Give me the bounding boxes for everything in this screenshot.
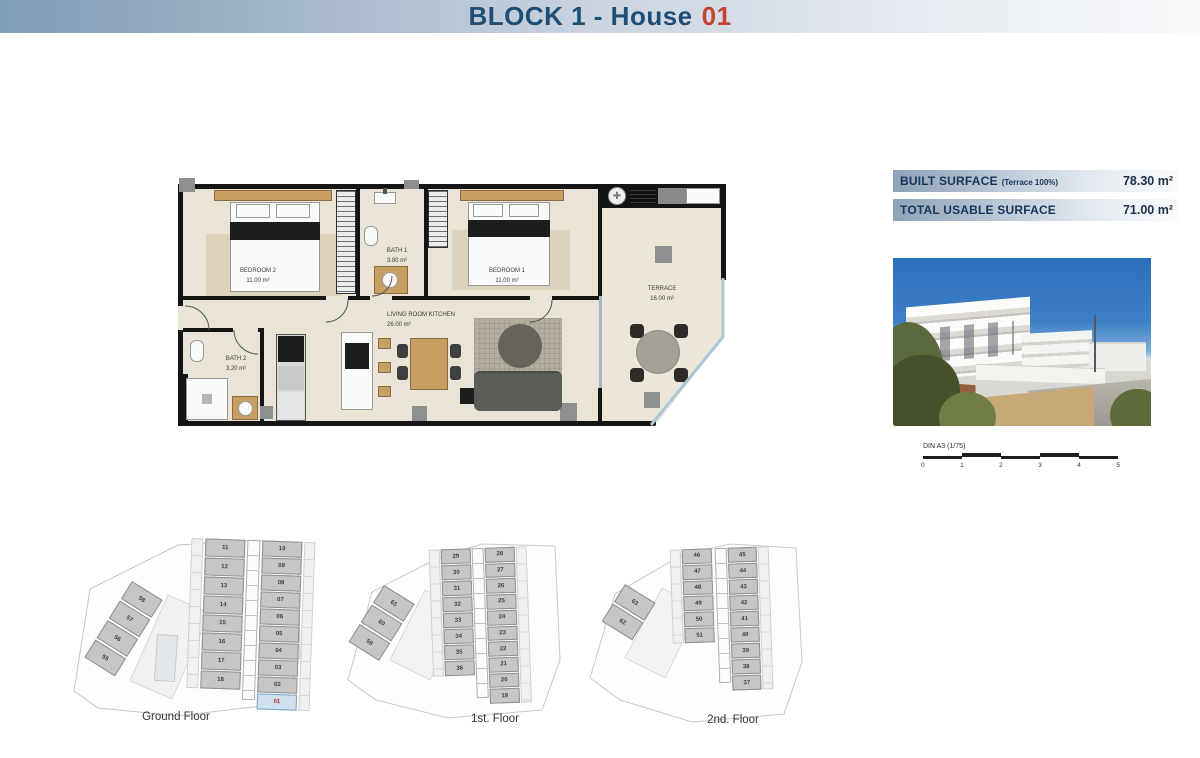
unit-cell: 33 bbox=[443, 612, 474, 628]
unit-cell: 02 bbox=[257, 676, 298, 693]
unit-cell: 19 bbox=[490, 688, 520, 704]
unit-cell: 15 bbox=[202, 614, 243, 633]
unit-cell: 48 bbox=[683, 580, 713, 596]
unit-cell: 28 bbox=[485, 547, 515, 563]
unit-cell: 51 bbox=[684, 627, 714, 643]
unit-column-right: 10090807060504030201 bbox=[257, 540, 303, 710]
floor-label: Ground Floor bbox=[126, 711, 226, 723]
unit-cell: 31 bbox=[442, 580, 473, 596]
unit-cell: 20 bbox=[489, 672, 519, 688]
unit-cell: 22 bbox=[488, 641, 518, 657]
tower: 1112131415161718 10090807060504030201 bbox=[54, 526, 311, 735]
header-banner: BLOCK 1 - House01 bbox=[0, 0, 1200, 33]
unit-cell: 37 bbox=[732, 675, 762, 691]
unit-cell: 03 bbox=[258, 659, 299, 676]
unit-cell: 09 bbox=[261, 557, 302, 574]
door-arc bbox=[326, 300, 348, 322]
unit-cell: 47 bbox=[682, 564, 712, 580]
unit-cell: 18 bbox=[200, 670, 241, 689]
plan-sheet: BLOCK 1 - House01 bbox=[0, 0, 1200, 758]
unit-cell: 39 bbox=[731, 643, 761, 659]
unit-cell: 41 bbox=[730, 611, 760, 627]
unit-cell: 34 bbox=[443, 628, 474, 644]
unit-cell: 45 bbox=[728, 547, 758, 563]
unit-cell: 29 bbox=[441, 548, 472, 564]
unit-cell: 13 bbox=[204, 576, 245, 595]
unit-cell: 25 bbox=[486, 594, 516, 610]
door-arc bbox=[185, 306, 209, 330]
unit-cell: 01 bbox=[257, 693, 298, 710]
floor-plan: ✚ bbox=[178, 178, 734, 430]
unit-cell: 16 bbox=[202, 633, 243, 652]
unit-cell: 43 bbox=[729, 579, 759, 595]
page-title: BLOCK 1 - House01 bbox=[468, 1, 731, 32]
surface-value: 71.00 m² bbox=[1123, 203, 1173, 217]
unit-cell: 10 bbox=[262, 540, 303, 557]
surface-value: 78.30 m² bbox=[1123, 174, 1173, 188]
scale-tick: 5 bbox=[1116, 462, 1120, 469]
photo-lamp-pole bbox=[1094, 315, 1096, 372]
surface-row-built: BUILT SURFACE (Terrace 100%) 78.30 m² bbox=[893, 170, 1178, 192]
unit-column-left: 464748495051 bbox=[682, 548, 715, 643]
floor-label: 2nd. Floor bbox=[683, 714, 783, 726]
unit-cell: 42 bbox=[729, 595, 759, 611]
unit-cell: 27 bbox=[485, 562, 515, 578]
unit-cell: 30 bbox=[441, 564, 472, 580]
unit-cell: 06 bbox=[260, 608, 301, 625]
scale-bar: DIN A3 (1/75) 012345 bbox=[923, 443, 1133, 469]
plan-overlay bbox=[178, 178, 734, 430]
unit-cell: 07 bbox=[260, 591, 301, 608]
scale-tick: 3 bbox=[1038, 462, 1042, 469]
unit-cell: 46 bbox=[682, 548, 712, 564]
surface-note: (Terrace 100%) bbox=[1002, 178, 1058, 187]
unit-cell: 11 bbox=[205, 538, 246, 557]
unit-cell: 38 bbox=[731, 659, 761, 675]
surface-table: BUILT SURFACE (Terrace 100%) 78.30 m² TO… bbox=[893, 170, 1178, 228]
scale-label: DIN A3 (1/75) bbox=[923, 443, 1133, 450]
scale-tick: 1 bbox=[960, 462, 964, 469]
scale-tick: 4 bbox=[1077, 462, 1081, 469]
unit-column-right: 28272625242322212019 bbox=[485, 547, 520, 704]
photo-houses-right bbox=[1089, 342, 1146, 371]
unit-cell: 50 bbox=[684, 612, 714, 628]
unit-column-left: 1112131415161718 bbox=[200, 538, 245, 689]
door-arc bbox=[234, 330, 258, 354]
scale-tick: 0 bbox=[921, 462, 925, 469]
unit-cell: 35 bbox=[444, 644, 475, 660]
unit-cell: 23 bbox=[487, 625, 517, 641]
scale-ticks: 012345 bbox=[921, 462, 1120, 469]
unit-cell: 17 bbox=[201, 652, 242, 671]
unit-cell: 24 bbox=[487, 610, 517, 626]
door-arc bbox=[372, 276, 392, 296]
door-arc bbox=[530, 300, 552, 322]
unit-cell: 44 bbox=[728, 563, 758, 579]
page-title-text: BLOCK 1 - House bbox=[468, 1, 692, 31]
unit-cell: 08 bbox=[261, 574, 302, 591]
building-photo bbox=[893, 258, 1151, 426]
floor-key-first: 2930313233343536 28272625242322212019 61… bbox=[330, 530, 580, 735]
floor-key-second: 464748495051 454443424140393837 6362 2nd… bbox=[570, 530, 820, 735]
tower: 464748495051 454443424140393837 bbox=[569, 527, 826, 741]
unit-cell: 14 bbox=[203, 595, 244, 614]
chamfer-mask bbox=[652, 334, 734, 430]
unit-cell: 26 bbox=[486, 578, 516, 594]
unit-cell: 12 bbox=[204, 557, 245, 576]
unit-cell: 49 bbox=[683, 596, 713, 612]
unit-cell: 40 bbox=[730, 627, 760, 643]
floor-key-ground: 1112131415161718 10090807060504030201 58… bbox=[60, 533, 310, 733]
scale-tick: 2 bbox=[999, 462, 1003, 469]
surface-row-usable: TOTAL USABLE SURFACE 71.00 m² bbox=[893, 199, 1178, 221]
surface-label: TOTAL USABLE SURFACE bbox=[900, 203, 1056, 217]
unit-cell: 36 bbox=[445, 660, 476, 676]
unit-cell: 05 bbox=[259, 625, 300, 642]
surface-label: BUILT SURFACE bbox=[900, 174, 998, 188]
scale-bar-line bbox=[923, 452, 1118, 460]
unit-column-right: 454443424140393837 bbox=[728, 547, 762, 691]
unit-cell: 04 bbox=[258, 642, 299, 659]
unit-cell: 21 bbox=[488, 657, 518, 673]
unit-cell: 32 bbox=[442, 596, 473, 612]
floor-label: 1st. Floor bbox=[445, 713, 545, 725]
unit-column-left: 2930313233343536 bbox=[441, 548, 475, 676]
house-number: 01 bbox=[702, 1, 732, 31]
